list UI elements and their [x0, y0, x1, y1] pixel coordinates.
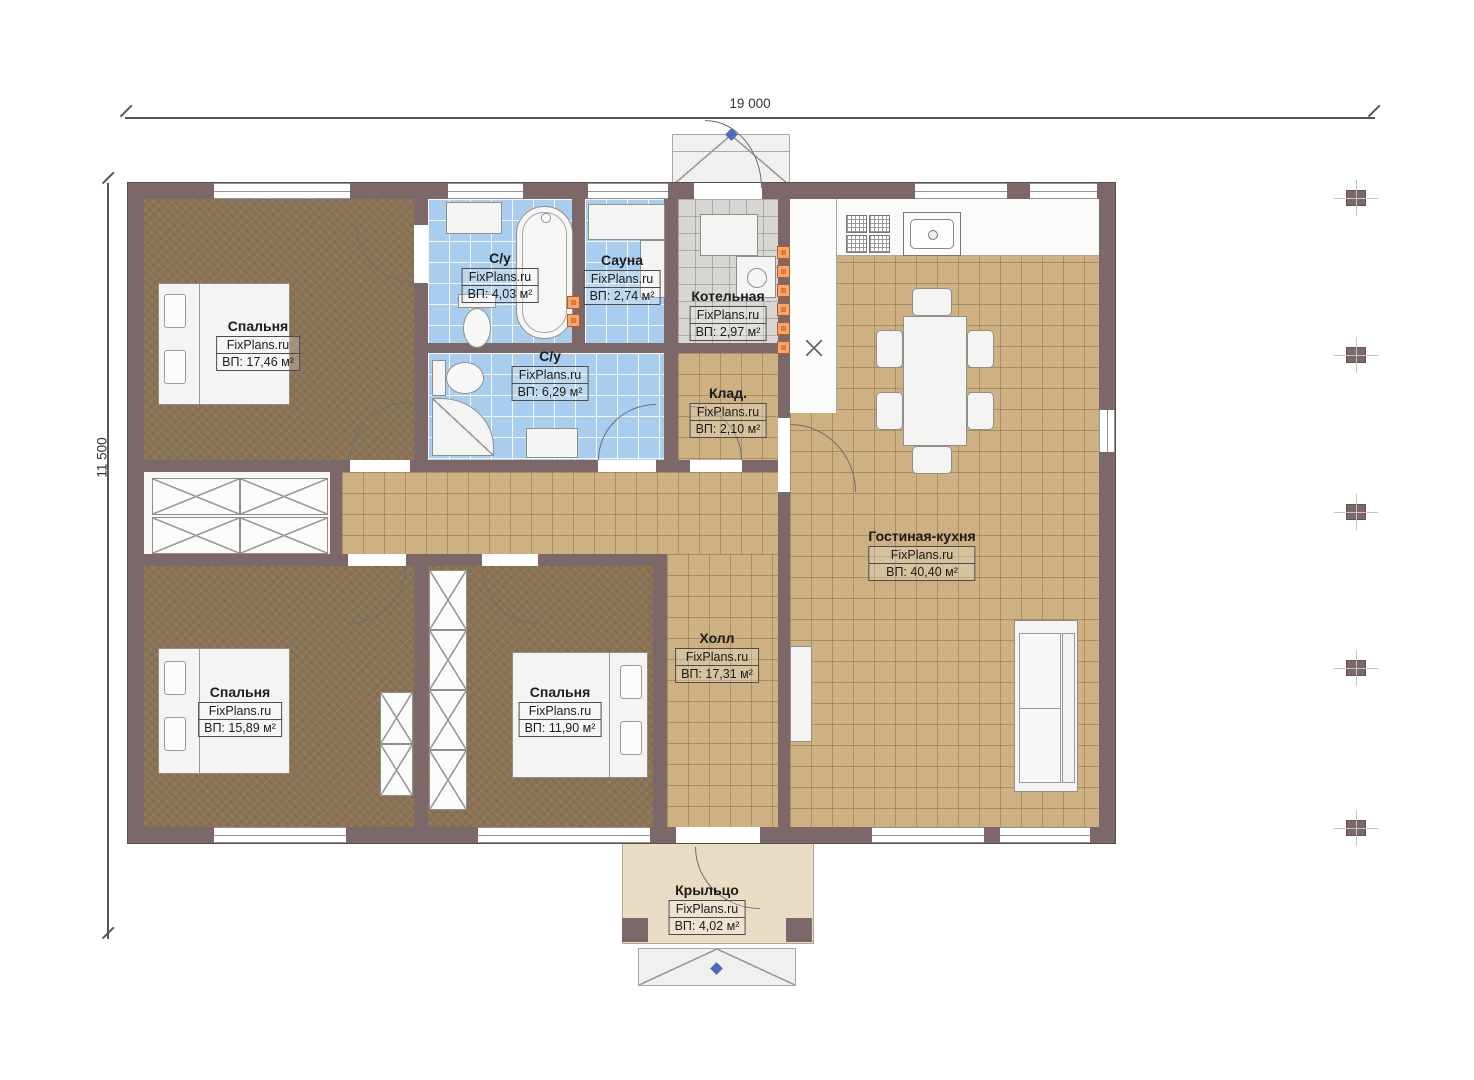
radiator: [567, 296, 580, 309]
tv-stand: [790, 646, 812, 742]
chair: [876, 330, 903, 368]
room-name: Холл: [675, 630, 759, 647]
room-brand: FixPlans.ru: [584, 270, 661, 288]
room-name: Спальня: [216, 318, 300, 335]
room-brand: FixPlans.ru: [690, 403, 767, 421]
room-label-bedroom-2: Спальня FixPlans.ru ВП: 15,89 м²: [198, 684, 282, 737]
pillow: [164, 717, 186, 751]
room-label-storage: Клад. FixPlans.ru ВП: 2,10 м²: [690, 385, 767, 438]
room-brand: FixPlans.ru: [675, 648, 759, 666]
wardrobe: [429, 630, 467, 690]
porch-pillar: [622, 918, 648, 942]
room-label-bathroom-2: С/у FixPlans.ru ВП: 6,29 м²: [512, 348, 589, 401]
column-marker: [1346, 660, 1366, 676]
toilet-bowl: [446, 362, 484, 394]
height-dimension-line: [107, 183, 109, 939]
hall-floor: [667, 554, 778, 827]
sink: [526, 428, 578, 458]
room-label-bedroom-3: Спальня FixPlans.ru ВП: 11,90 м²: [519, 684, 602, 737]
window: [1099, 410, 1115, 452]
interior-wall: [664, 199, 678, 343]
pillow: [164, 350, 186, 384]
room-name: Котельная: [690, 288, 767, 305]
interior-wall: [330, 472, 342, 554]
room-name: Спальня: [198, 684, 282, 701]
porch-door-opening: [676, 827, 760, 843]
column-marker: [1346, 347, 1366, 363]
room-area: ВП: 2,74 м²: [584, 287, 661, 305]
sauna-bench: [588, 204, 665, 240]
room-brand: FixPlans.ru: [216, 336, 300, 354]
porch-pillar: [786, 918, 812, 942]
radiator: [777, 303, 790, 316]
room-name: Сауна: [584, 252, 661, 269]
kitchen-sink: [903, 212, 961, 256]
sofa-seat: [1019, 633, 1061, 783]
x-symbol-icon: [806, 340, 822, 356]
blanket-line: [609, 653, 610, 777]
sofa-back: [1062, 633, 1075, 783]
steps-line: [717, 949, 795, 985]
sink: [446, 202, 502, 234]
radiator: [777, 284, 790, 297]
room-name: Крыльцо: [669, 882, 746, 899]
door-opening: [350, 460, 410, 472]
room-area: ВП: 4,02 м²: [669, 917, 746, 935]
width-dimension-line: [125, 117, 1375, 119]
window: [1000, 827, 1090, 843]
room-area: ВП: 15,89 м²: [198, 719, 282, 737]
window: [872, 827, 984, 843]
radiator: [777, 322, 790, 335]
door-opening: [690, 460, 742, 472]
sofa: [1014, 620, 1078, 792]
stove-burner: [869, 215, 890, 233]
interior-wall: [664, 353, 678, 460]
hall-floor: [342, 472, 778, 554]
steps-line: [639, 949, 717, 985]
floor-plan: 19 000 11 500: [0, 0, 1474, 1080]
room-area: ВП: 17,31 м²: [675, 665, 759, 683]
stove-burner: [846, 215, 867, 233]
room-name: Гостиная-кухня: [868, 528, 975, 545]
pillow: [620, 665, 642, 699]
room-label-living: Гостиная-кухня FixPlans.ru ВП: 40,40 м²: [868, 528, 975, 581]
wardrobe: [429, 750, 467, 810]
column-marker: [1346, 190, 1366, 206]
pillow: [164, 661, 186, 695]
window: [478, 827, 650, 843]
door-opening: [414, 225, 428, 283]
blanket-line: [199, 284, 200, 404]
stove-burner: [869, 235, 890, 253]
room-area: ВП: 6,29 м²: [512, 383, 589, 401]
column-marker: [1346, 820, 1366, 836]
room-area: ВП: 2,10 м²: [690, 420, 767, 438]
chair: [912, 288, 952, 316]
room-label-bathroom-1: С/у FixPlans.ru ВП: 4,03 м²: [462, 250, 539, 303]
room-brand: FixPlans.ru: [690, 306, 767, 324]
wardrobe: [152, 478, 240, 515]
window: [1030, 183, 1097, 199]
door-opening: [482, 554, 538, 566]
pillow: [164, 294, 186, 328]
room-label-porch: Крыльцо FixPlans.ru ВП: 4,02 м²: [669, 882, 746, 935]
room-brand: FixPlans.ru: [519, 702, 602, 720]
window: [214, 827, 346, 843]
pillow: [620, 721, 642, 755]
room-name: С/у: [462, 250, 539, 267]
room-brand: FixPlans.ru: [669, 900, 746, 918]
room-label-sauna: Сауна FixPlans.ru ВП: 2,74 м²: [584, 252, 661, 305]
wardrobe: [429, 690, 467, 750]
room-brand: FixPlans.ru: [512, 366, 589, 384]
room-name: Спальня: [519, 684, 602, 701]
room-area: ВП: 11,90 м²: [519, 719, 602, 737]
door-opening: [598, 460, 656, 472]
chair: [876, 392, 903, 430]
room-name: Клад.: [690, 385, 767, 402]
wardrobe: [429, 570, 467, 630]
wardrobe: [380, 744, 413, 796]
height-dimension-label: 11 500: [95, 413, 110, 503]
room-area: ВП: 40,40 м²: [868, 563, 975, 581]
door-opening: [778, 418, 790, 492]
kitchen-counter: [790, 199, 837, 413]
window: [915, 183, 1007, 199]
chair: [967, 330, 994, 368]
radiator: [777, 341, 790, 354]
room-area: ВП: 17,46 м²: [216, 353, 300, 371]
chair: [912, 446, 952, 474]
room-brand: FixPlans.ru: [198, 702, 282, 720]
dining-table: [903, 316, 967, 446]
room-area: ВП: 4,03 м²: [462, 285, 539, 303]
radiator: [777, 265, 790, 278]
room-area: ВП: 2,97 м²: [690, 323, 767, 341]
interior-wall: [653, 566, 667, 827]
stove-burner: [846, 235, 867, 253]
toilet: [432, 360, 446, 396]
room-label-boiler: Котельная FixPlans.ru ВП: 2,97 м²: [690, 288, 767, 341]
room-label-hall: Холл FixPlans.ru ВП: 17,31 м²: [675, 630, 759, 683]
column-marker: [1346, 504, 1366, 520]
wardrobe: [240, 517, 328, 554]
wardrobe: [152, 517, 240, 554]
room-name: С/у: [512, 348, 589, 365]
window: [214, 183, 350, 199]
door-opening: [348, 554, 406, 566]
boiler-unit: [700, 214, 758, 256]
room-brand: FixPlans.ru: [462, 268, 539, 286]
toilet-bowl: [463, 308, 491, 348]
width-dimension-label: 19 000: [125, 96, 1375, 111]
radiator: [567, 314, 580, 327]
wardrobe: [240, 478, 328, 515]
interior-wall: [414, 566, 428, 827]
radiator: [777, 246, 790, 259]
window: [588, 183, 668, 199]
room-brand: FixPlans.ru: [868, 546, 975, 564]
room-label-bedroom-1: Спальня FixPlans.ru ВП: 17,46 м²: [216, 318, 300, 371]
chair: [967, 392, 994, 430]
wardrobe: [380, 692, 413, 744]
window: [448, 183, 523, 199]
